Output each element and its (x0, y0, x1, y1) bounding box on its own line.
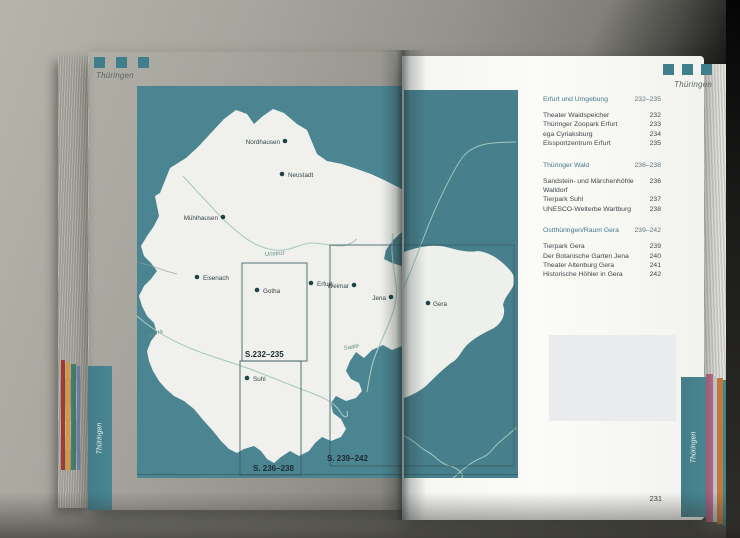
edge-tab-stripe-blue (77, 366, 80, 470)
backdrop-shadow-bottom (0, 492, 740, 538)
index-item-page: 242 (650, 270, 661, 279)
index-item-label: Eissportzentrum Erfurt (543, 139, 611, 148)
thuringia-map-left: Nordhausen Neustadt Mühlhausen Eisenach … (137, 86, 402, 478)
index-item-label: Theater Waidspeicher (543, 111, 609, 120)
section-square-icon (682, 64, 693, 75)
index-item-page: 236 (650, 177, 661, 196)
index-item: Der Botanische Garten Jena 240 (543, 252, 661, 261)
section-square-icon (138, 57, 149, 68)
thuringia-map-right: Gera (404, 90, 518, 478)
city-label-nordhausen: Nordhausen (246, 139, 281, 146)
city-dot-erfurt (309, 281, 314, 286)
inset-label-erfurt: S.232–235 (245, 350, 284, 359)
index-section-heading: Thüringer Wald 236–238 (543, 162, 661, 169)
index-item-label: Thüringer Zoopark Erfurt (543, 120, 617, 129)
left-tab-label: Thüringen (97, 422, 104, 454)
index-item-label: Historische Höhler in Gera (543, 270, 623, 279)
index-item-page: 233 (650, 120, 661, 129)
city-dot-gotha (255, 288, 260, 293)
right-tab-label: Thüringen (690, 431, 697, 463)
right-page: Thüringen Gera Erfurt und Umgebung 232–2… (402, 56, 704, 520)
index-item: ega Cyriaksburg 234 (543, 130, 661, 139)
index-item: Historische Höhler in Gera 242 (543, 270, 661, 279)
index-item-label: ega Cyriaksburg (543, 130, 593, 139)
backdrop-right-band (726, 0, 740, 538)
index-item-page: 241 (650, 261, 661, 270)
edge-tab-stripe-green (71, 364, 76, 470)
section-square-icon (701, 64, 712, 75)
index-item-page: 235 (650, 139, 661, 148)
index-section-title: Thüringer Wald (543, 162, 589, 169)
city-label-muehlhausen: Mühlhausen (184, 215, 219, 222)
inset-label-thueringer-wald: S. 236–238 (253, 464, 294, 473)
index-section-pages: 239–242 (635, 227, 661, 234)
index-item: Sandstein- und Märchenhöhle Walldorf 236 (543, 177, 661, 196)
city-dot-suhl (245, 376, 250, 381)
index-item-label: Theater Altenburg Gera (543, 261, 614, 270)
index-item-label: Sandstein- und Märchenhöhle Walldorf (543, 177, 650, 196)
city-label-gera: Gera (433, 301, 447, 308)
index-section-heading: Ostthüringen/Raum Gera 239–242 (543, 227, 661, 234)
index-item-page: 232 (650, 111, 661, 120)
city-label-gotha: Gotha (263, 288, 281, 295)
city-dot-muehlhausen (221, 215, 226, 220)
section-square-icon (94, 57, 105, 68)
index-section-pages: 236–238 (635, 162, 661, 169)
left-section-tab: Thüringen (88, 366, 112, 510)
city-dot-eisenach (195, 275, 200, 280)
right-header-section-label: Thüringen (612, 80, 712, 89)
index-section-heading: Erfurt und Umgebung 232–235 (543, 96, 661, 103)
city-dot-gera (426, 301, 431, 306)
city-label-jena: Jena (372, 295, 386, 302)
city-dot-nordhausen (283, 139, 288, 144)
edge-tab-stripe-orange (66, 362, 70, 470)
index-item: Thüringer Zoopark Erfurt 233 (543, 120, 661, 129)
index-item: Theater Waidspeicher 232 (543, 111, 661, 120)
city-dot-weimar (352, 283, 357, 288)
index-item: Eissportzentrum Erfurt 235 (543, 139, 661, 148)
city-label-suhl: Suhl (253, 376, 266, 383)
index-section-title: Ostthüringen/Raum Gera (543, 227, 619, 234)
left-header-section-label: Thüringen (96, 71, 134, 80)
index-item-page: 234 (650, 130, 661, 139)
inset-label-ostthueringen: S. 239–242 (327, 454, 368, 463)
index-item: Tierpark Gera 239 (543, 242, 661, 251)
city-label-eisenach: Eisenach (203, 275, 229, 282)
index-item: Theater Altenburg Gera 241 (543, 261, 661, 270)
city-dot-jena (389, 295, 394, 300)
index-section-pages: 232–235 (635, 96, 661, 103)
city-label-weimar: Weimar (327, 283, 349, 290)
map-index: Erfurt und Umgebung 232–235 Theater Waid… (543, 96, 661, 280)
edge-tab-stripe-red (61, 360, 65, 470)
index-item-label: Der Botanische Garten Jena (543, 252, 629, 261)
index-item: Tierpark Suhl 237 (543, 195, 661, 204)
city-label-neustadt: Neustadt (288, 172, 313, 179)
index-item: UNESCO-Welterbe Wartburg 238 (543, 205, 661, 214)
show-through-image-ghost (549, 335, 676, 421)
index-item-page: 239 (650, 242, 661, 251)
section-square-icon (663, 64, 674, 75)
index-item-label: Tierpark Gera (543, 242, 585, 251)
index-item-page: 240 (650, 252, 661, 261)
photo-backdrop: Thüringen Nordh (0, 0, 740, 538)
index-item-label: Tierpark Suhl (543, 195, 583, 204)
section-square-icon (116, 57, 127, 68)
left-page: Thüringen Nordh (88, 52, 402, 510)
index-item-page: 237 (650, 195, 661, 204)
city-dot-neustadt (280, 172, 285, 177)
index-section-title: Erfurt und Umgebung (543, 96, 608, 103)
index-item-label: UNESCO-Welterbe Wartburg (543, 205, 631, 214)
index-item-page: 238 (650, 205, 661, 214)
